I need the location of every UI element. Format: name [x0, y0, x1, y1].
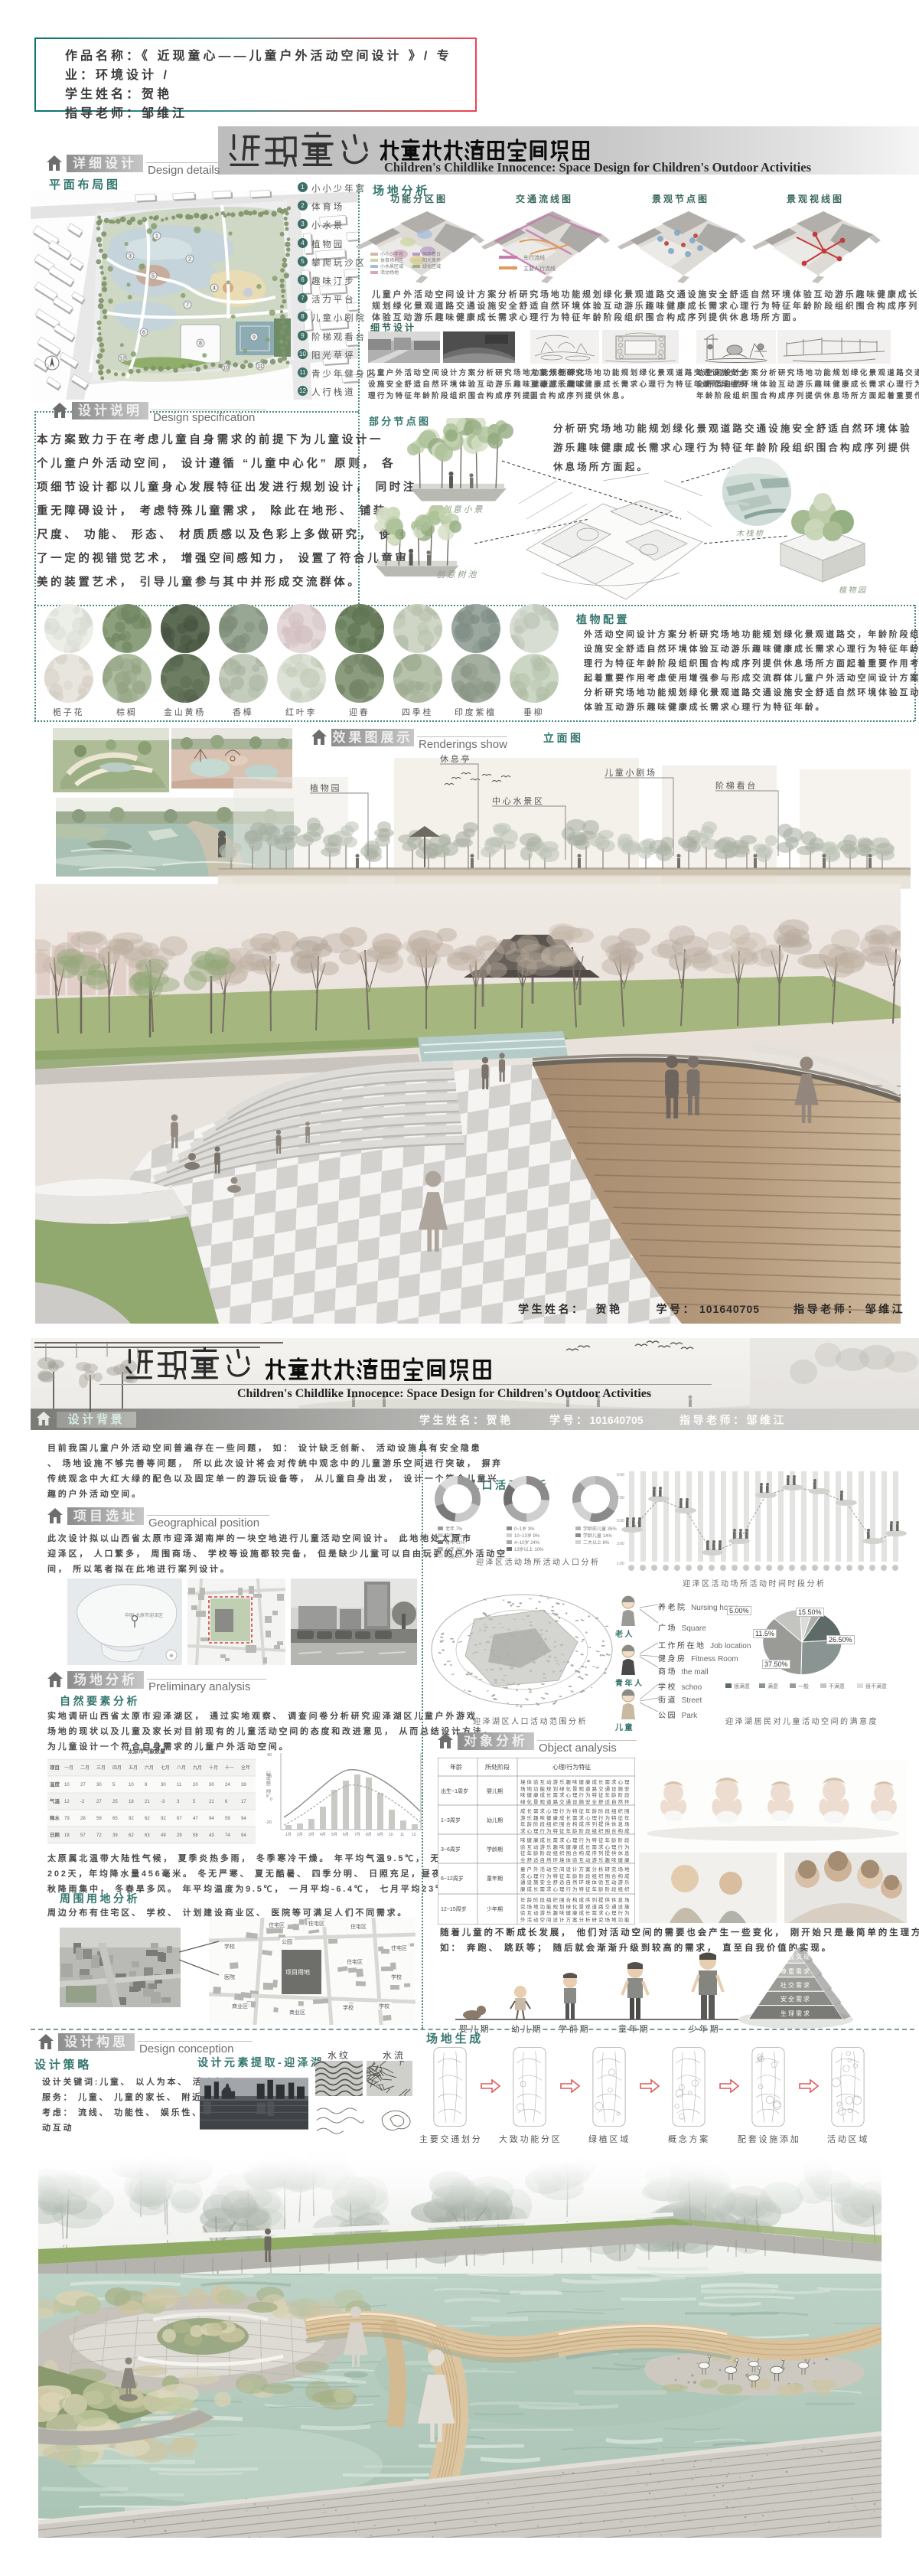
svg-text:主要人行流线: 主要人行流线	[523, 265, 556, 272]
svg-text:小水景区域: 小水景区域	[380, 263, 403, 269]
svg-text:住宅区: 住宅区	[269, 1921, 285, 1928]
svg-text:验互动游乐趣味健康成长需求心理行为: 验互动游乐趣味健康成长需求心理行为	[520, 1909, 631, 1916]
svg-text:92: 92	[129, 1817, 134, 1821]
svg-text:58: 58	[193, 1833, 198, 1838]
svg-text:青年 11%: 青年 11%	[445, 1539, 465, 1546]
svg-text:年龄阶段组织围合构成序列提供休息场: 年龄阶段组织围合构成序列提供休息场	[520, 1896, 631, 1903]
svg-text:学校: 学校	[224, 1943, 235, 1950]
svg-text:出生~1周岁: 出生~1周岁	[441, 1788, 468, 1794]
svg-text:1:00: 1:00	[617, 1562, 624, 1566]
svg-text:4: 4	[213, 286, 216, 292]
svg-text:65: 65	[112, 1817, 118, 1821]
svg-text:社交需求: 社交需求	[780, 1981, 811, 1989]
svg-text:游乐趣味健康成长需求心理行为特征年: 游乐趣味健康成长需求心理行为特征年	[520, 1814, 631, 1821]
svg-text:年龄阶段组织围合构成序列提供休息场: 年龄阶段组织围合构成序列提供休息场	[520, 1820, 631, 1827]
svg-text:绿化区域: 绿化区域	[422, 263, 441, 269]
svg-text:27: 27	[96, 1800, 102, 1804]
svg-text:40: 40	[267, 1753, 272, 1758]
svg-text:79: 79	[64, 1817, 70, 1821]
svg-text:18: 18	[64, 1833, 70, 1838]
svg-text:49: 49	[161, 1833, 166, 1838]
svg-text:74: 74	[225, 1833, 230, 1838]
svg-text:十一: 十一	[225, 1765, 234, 1771]
svg-text:10~13岁 9%: 10~13岁 9%	[514, 1533, 540, 1539]
svg-text:43: 43	[209, 1833, 214, 1838]
svg-text:七月: 七月	[161, 1765, 170, 1771]
svg-text:-3: -3	[161, 1800, 165, 1804]
svg-text:童年期: 童年期	[487, 1875, 503, 1882]
svg-text:味健康成长需求心理行为特征年龄阶段: 味健康成长需求心理行为特征年龄阶段	[520, 1837, 631, 1843]
svg-text:温度: 温度	[50, 1781, 60, 1788]
svg-text:气温: 气温	[49, 1797, 60, 1804]
svg-text:很不满意: 很不满意	[865, 1683, 887, 1690]
svg-text:五月: 五月	[129, 1765, 138, 1771]
svg-text:学龄期: 学龄期	[487, 1846, 503, 1853]
svg-text:2: 2	[188, 257, 191, 263]
svg-text:2月: 2月	[297, 1833, 303, 1837]
svg-text:57: 57	[80, 1833, 86, 1838]
svg-text:5: 5	[152, 274, 155, 279]
svg-text:住宅区: 住宅区	[350, 1923, 367, 1930]
svg-text:公园: 公园	[282, 1939, 292, 1945]
svg-text:10: 10	[389, 1833, 393, 1837]
svg-text:1: 1	[155, 234, 158, 240]
svg-text:21: 21	[209, 1800, 214, 1804]
svg-text:少年期: 少年期	[487, 1905, 503, 1912]
svg-text:满意: 满意	[767, 1683, 778, 1690]
svg-text:18: 18	[129, 1800, 134, 1804]
svg-text:-2: -2	[80, 1800, 85, 1804]
svg-text:绿化景观道路交通设施安全舒适自然环: 绿化景观道路交通设施安全舒适自然环	[520, 1798, 631, 1805]
svg-text:项目用地: 项目用地	[285, 1968, 310, 1976]
svg-text:中国·太原市迎泽区: 中国·太原市迎泽区	[125, 1612, 163, 1618]
svg-text:学校: 学校	[343, 2004, 354, 2011]
svg-text:30: 30	[161, 1783, 166, 1788]
svg-text:39: 39	[112, 1833, 118, 1838]
svg-text:婴儿期: 婴儿期	[487, 1788, 503, 1794]
svg-text:9: 9	[253, 335, 256, 341]
svg-text:医院: 医院	[224, 1974, 235, 1980]
svg-text:自我实现: 自我实现	[780, 1953, 811, 1961]
svg-text:3:00: 3:00	[617, 1542, 624, 1546]
svg-text:八月: 八月	[177, 1765, 186, 1771]
svg-text:学龄儿童 14%: 学龄儿童 14%	[583, 1533, 612, 1539]
svg-text:7月: 7月	[354, 1833, 360, 1837]
svg-text:3~6周岁: 3~6周岁	[441, 1846, 461, 1853]
svg-text:94: 94	[241, 1817, 246, 1821]
svg-text:降水: 降水	[50, 1814, 60, 1821]
svg-text:场地功能规划绿化景观道路交通设施安: 场地功能规划绿化景观道路交通设施安	[520, 1785, 631, 1792]
svg-text:59: 59	[225, 1817, 230, 1821]
svg-text:二月: 二月	[80, 1765, 90, 1771]
svg-text:中年 4%: 中年 4%	[445, 1533, 463, 1539]
svg-text:剧场看台: 剧场看台	[422, 251, 441, 257]
svg-text:住宅区: 住宅区	[308, 1920, 324, 1927]
svg-text:5月: 5月	[331, 1833, 337, 1837]
svg-text:10: 10	[129, 1783, 134, 1788]
svg-text:72: 72	[96, 1833, 102, 1838]
svg-text:十月: 十月	[209, 1765, 218, 1771]
svg-text:7:00: 7:00	[617, 1496, 624, 1500]
svg-text:6月: 6月	[343, 1833, 349, 1837]
svg-text:求心理行为特征年龄阶段组织围合构成: 求心理行为特征年龄阶段组织围合构成	[520, 1827, 631, 1834]
svg-text:生理需求: 生理需求	[780, 2010, 811, 2017]
svg-text:通设施安全舒适自然环境体验互动游乐: 通设施安全舒适自然环境体验互动游乐	[520, 1879, 631, 1885]
svg-text:所处阶段: 所处阶段	[485, 1763, 510, 1771]
svg-text:究场地功能规划绿化景观道路交通设施: 究场地功能规划绿化景观道路交通设施	[520, 1903, 631, 1910]
svg-text:13岁以上 10%: 13岁以上 10%	[514, 1546, 544, 1552]
svg-text:94: 94	[241, 1833, 246, 1838]
svg-text:25: 25	[112, 1800, 118, 1804]
svg-text:5:00: 5:00	[617, 1519, 624, 1523]
svg-text:学龄前儿童 35%: 学龄前儿童 35%	[583, 1526, 617, 1532]
svg-text:8: 8	[199, 341, 202, 347]
svg-text:12~15周岁: 12~15周岁	[441, 1905, 467, 1912]
svg-text:6: 6	[142, 331, 145, 336]
svg-text:气温（摄氏度）: 气温（摄氏度）	[266, 1768, 272, 1797]
svg-text:92: 92	[161, 1817, 166, 1821]
svg-text:94: 94	[209, 1817, 214, 1821]
svg-text:学校: 学校	[379, 2003, 389, 2010]
svg-text:62: 62	[129, 1833, 134, 1838]
svg-text:尊重需求: 尊重需求	[780, 1967, 811, 1975]
svg-text:4月: 4月	[320, 1833, 326, 1837]
svg-text:住宅区: 住宅区	[347, 1958, 363, 1965]
svg-text:学校: 学校	[391, 1974, 402, 1980]
svg-text:0~1岁 3%: 0~1岁 3%	[514, 1526, 535, 1532]
svg-text:求心理行为特征年龄阶段组织围合构成: 求心理行为特征年龄阶段组织围合构成	[520, 1872, 631, 1879]
svg-text:47: 47	[193, 1817, 198, 1821]
svg-text:少年 13%: 少年 13%	[445, 1546, 465, 1552]
svg-text:39: 39	[241, 1783, 246, 1788]
svg-text:29: 29	[177, 1833, 182, 1838]
svg-text:20: 20	[193, 1783, 198, 1788]
svg-text:一月: 一月	[64, 1765, 73, 1771]
svg-text:成长需求心理行为特征年龄阶段组织围: 成长需求心理行为特征年龄阶段组织围	[520, 1807, 631, 1814]
svg-text:很满意: 很满意	[734, 1683, 750, 1690]
svg-text:12: 12	[119, 357, 125, 362]
svg-text:味健康成长需求心理行为特征年龄阶段: 味健康成长需求心理行为特征年龄阶段	[520, 1791, 631, 1798]
svg-text:外活动空间设计方案分析研究场地功能: 外活动空间设计方案分析研究场地功能	[520, 1916, 631, 1923]
svg-text:项目: 项目	[50, 1764, 60, 1771]
svg-text:日照: 日照	[50, 1831, 60, 1838]
svg-text:24: 24	[225, 1783, 230, 1788]
svg-text:活动场地: 活动场地	[380, 269, 399, 276]
svg-text:11: 11	[400, 1833, 404, 1837]
svg-text:心理/行为特征: 心理/行为特征	[552, 1763, 591, 1771]
svg-text:童户外活动空间设计方案分析研究场地: 童户外活动空间设计方案分析研究场地	[520, 1866, 631, 1872]
svg-text:一般: 一般	[798, 1683, 809, 1690]
svg-text:全年: 全年	[241, 1765, 250, 1771]
svg-text:11: 11	[177, 1783, 182, 1788]
svg-text:商业区: 商业区	[289, 2009, 305, 2016]
svg-text:62: 62	[145, 1817, 150, 1821]
svg-text:住宅区: 住宅区	[391, 1944, 407, 1951]
svg-text:四月: 四月	[112, 1765, 122, 1771]
svg-text:67: 67	[177, 1817, 182, 1821]
svg-text:境体验互动游乐趣味健康成长需求心理: 境体验互动游乐趣味健康成长需求心理	[520, 1778, 631, 1785]
svg-text:三月: 三月	[96, 1765, 106, 1771]
svg-text:21: 21	[145, 1800, 150, 1804]
svg-text:康成长需求心理行为特征年龄阶段组织: 康成长需求心理行为特征年龄阶段组织	[520, 1885, 631, 1892]
svg-text:年龄: 年龄	[450, 1763, 462, 1771]
svg-text:车行流线: 车行流线	[523, 254, 545, 261]
svg-text:11: 11	[257, 364, 262, 370]
svg-text:小小少年宫: 小小少年宫	[380, 251, 403, 257]
svg-text:9:00: 9:00	[617, 1473, 624, 1477]
svg-text:全舒适自然环境体验互动游乐趣味健康: 全舒适自然环境体验互动游乐趣味健康	[520, 1856, 631, 1863]
svg-text:不满意: 不满意	[829, 1683, 845, 1690]
svg-text:安全需求: 安全需求	[780, 1995, 811, 2003]
svg-text:9月: 9月	[377, 1833, 383, 1837]
svg-text:儿童 30%: 儿童 30%	[445, 1553, 465, 1559]
svg-text:6~12周岁: 6~12周岁	[441, 1875, 464, 1882]
svg-text:63: 63	[145, 1833, 150, 1838]
svg-text:28: 28	[80, 1817, 86, 1821]
svg-text:3: 3	[129, 254, 132, 260]
svg-text:1月: 1月	[285, 1833, 292, 1837]
svg-text:幼儿期: 幼儿期	[487, 1817, 503, 1823]
svg-text:验互动游乐趣味健康成长需求心理行为: 验互动游乐趣味健康成长需求心理行为	[520, 1843, 631, 1850]
svg-text:-20: -20	[266, 1820, 272, 1825]
svg-text:太原市气象数量: 太原市气象数量	[128, 1748, 165, 1755]
svg-text:1~3周岁: 1~3周岁	[441, 1817, 461, 1823]
svg-text:7: 7	[186, 303, 189, 309]
svg-text:59: 59	[96, 1817, 102, 1821]
svg-text:12: 12	[412, 1833, 416, 1837]
svg-text:17: 17	[241, 1800, 246, 1804]
svg-text:阳光草坪: 阳光草坪	[422, 257, 441, 263]
svg-text:九月: 九月	[193, 1765, 202, 1771]
svg-text:8月: 8月	[366, 1833, 372, 1837]
svg-text:老年 7%: 老年 7%	[445, 1526, 463, 1532]
svg-text:10: 10	[64, 1783, 70, 1788]
svg-text:4~10岁 24%: 4~10岁 24%	[514, 1539, 540, 1546]
svg-text:12: 12	[64, 1800, 70, 1804]
svg-text:30: 30	[96, 1783, 102, 1788]
svg-text:⊕: ⊕	[169, 1654, 174, 1659]
svg-text:体育场地区: 体育场地区	[380, 257, 403, 263]
svg-text:六月: 六月	[145, 1765, 154, 1771]
svg-text:27: 27	[80, 1783, 86, 1788]
svg-text:10: 10	[223, 366, 229, 371]
svg-text:3月: 3月	[308, 1833, 314, 1837]
svg-text:征年龄阶段组织围合构成序列提供休息: 征年龄阶段组织围合构成序列提供休息	[520, 1850, 631, 1856]
svg-text:二大以上 8%: 二大以上 8%	[583, 1539, 610, 1546]
svg-text:商业区: 商业区	[232, 2003, 248, 2010]
svg-text:30: 30	[209, 1783, 214, 1788]
